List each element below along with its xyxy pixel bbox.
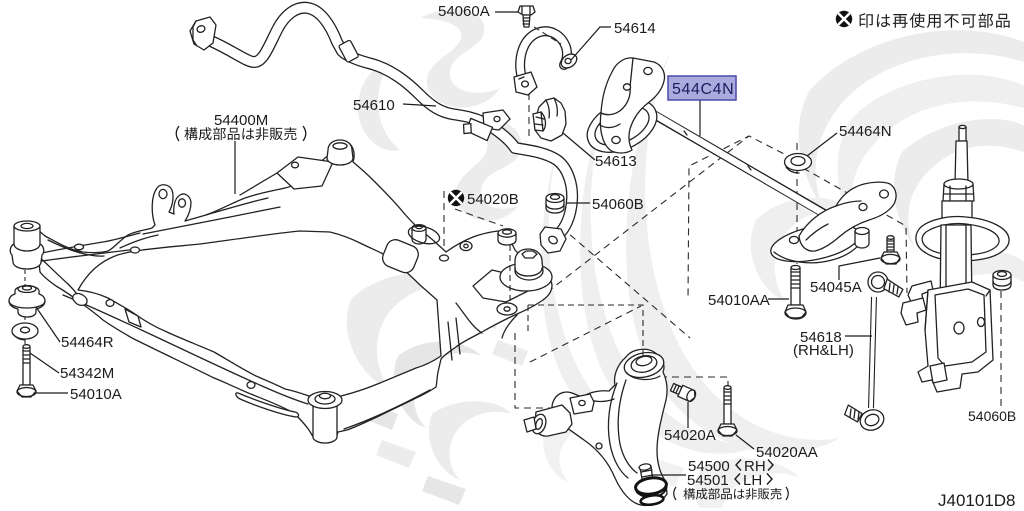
svg-text:54020B: 54020B bbox=[467, 191, 519, 208]
svg-text:54610: 54610 bbox=[353, 97, 395, 114]
svg-text:54060B: 54060B bbox=[592, 196, 644, 213]
svg-text:54060B: 54060B bbox=[968, 408, 1016, 424]
svg-text:LH: LH bbox=[743, 472, 762, 489]
svg-text:54464R: 54464R bbox=[61, 334, 114, 351]
svg-text:54400M: 54400M bbox=[214, 112, 268, 129]
svg-text:54045A: 54045A bbox=[810, 279, 862, 296]
svg-text:54020A: 54020A bbox=[664, 427, 716, 444]
svg-text:(RH&LH): (RH&LH) bbox=[793, 342, 854, 359]
svg-text:54464N: 54464N bbox=[839, 123, 892, 140]
svg-text:J40101D8: J40101D8 bbox=[938, 491, 1016, 510]
svg-text:54501: 54501 bbox=[687, 472, 729, 489]
svg-text:54342M: 54342M bbox=[60, 365, 114, 382]
svg-text:54060A: 54060A bbox=[438, 3, 490, 20]
svg-text:54010AA: 54010AA bbox=[708, 292, 770, 309]
svg-text:544C4N: 544C4N bbox=[672, 81, 734, 98]
svg-text:54614: 54614 bbox=[614, 20, 656, 37]
svg-text:54010A: 54010A bbox=[70, 386, 122, 403]
svg-text:54613: 54613 bbox=[595, 153, 637, 170]
